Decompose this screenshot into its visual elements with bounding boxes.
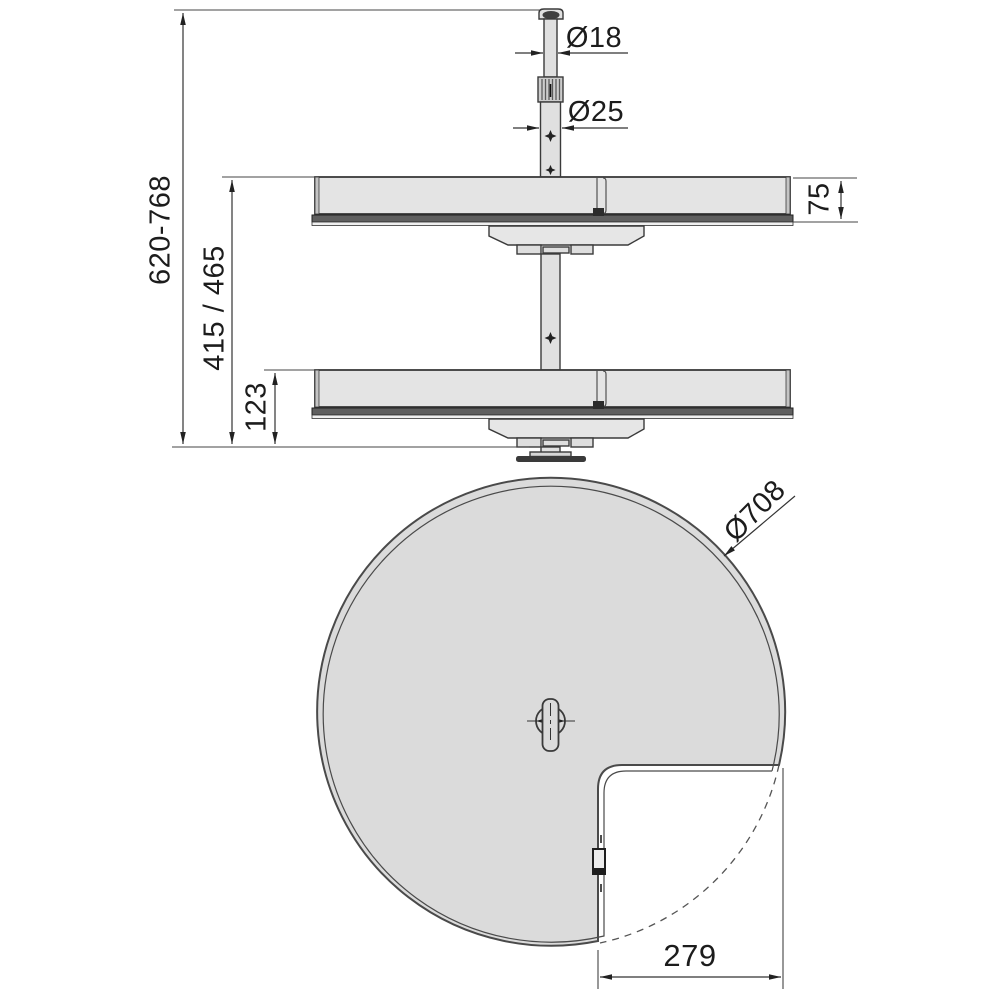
lower-shelf-section <box>312 370 793 462</box>
label-d25: Ø25 <box>568 96 624 128</box>
latch-foot <box>594 868 604 873</box>
lower-hub-clamp <box>517 438 593 447</box>
label-d18: Ø18 <box>566 22 622 54</box>
pole-mid <box>541 254 560 370</box>
upper-shelf-edge-left <box>315 177 319 214</box>
top-view <box>317 478 785 946</box>
upper-shelf-edge-right <box>786 177 790 214</box>
drawing-canvas: Ø18 Ø25 620-768 415 / 465 123 75 <box>0 0 1000 1000</box>
upper-shelf-band <box>315 177 790 214</box>
label-shelf-spacing: 415 / 465 <box>199 245 231 370</box>
technical-drawing: Ø18 Ø25 620-768 415 / 465 123 75 <box>0 0 1000 1000</box>
label-d708: Ø708 <box>718 474 792 548</box>
upper-hub <box>489 226 644 245</box>
label-rim-height: 75 <box>804 182 836 215</box>
label-lower-clearance: 123 <box>241 382 273 432</box>
upper-shelf-bottom-strip <box>312 222 793 226</box>
side-view <box>312 9 793 462</box>
upper-shelf-section <box>312 177 793 254</box>
lower-shelf-band <box>315 370 790 407</box>
pole-top-cap-dome <box>543 11 560 19</box>
lower-shelf-edge-right <box>786 370 790 407</box>
label-total-height: 620-768 <box>145 175 177 285</box>
upper-shelf-seam-clip <box>593 208 604 216</box>
foot-plate <box>530 452 571 457</box>
upper-hub-clamp <box>517 245 593 254</box>
label-279: 279 <box>663 938 716 973</box>
lower-shelf-seam-clip <box>593 401 604 409</box>
pole-tube-upper <box>544 19 557 77</box>
foot-base <box>516 456 586 462</box>
lower-shelf-bottom-strip <box>312 415 793 419</box>
lower-shelf-edge-left <box>315 370 319 407</box>
lower-hub <box>489 419 644 438</box>
lower-shelf-dark-band <box>312 408 793 415</box>
rotation-arc-dashed <box>600 765 779 943</box>
upper-shelf-dark-band <box>312 215 793 222</box>
